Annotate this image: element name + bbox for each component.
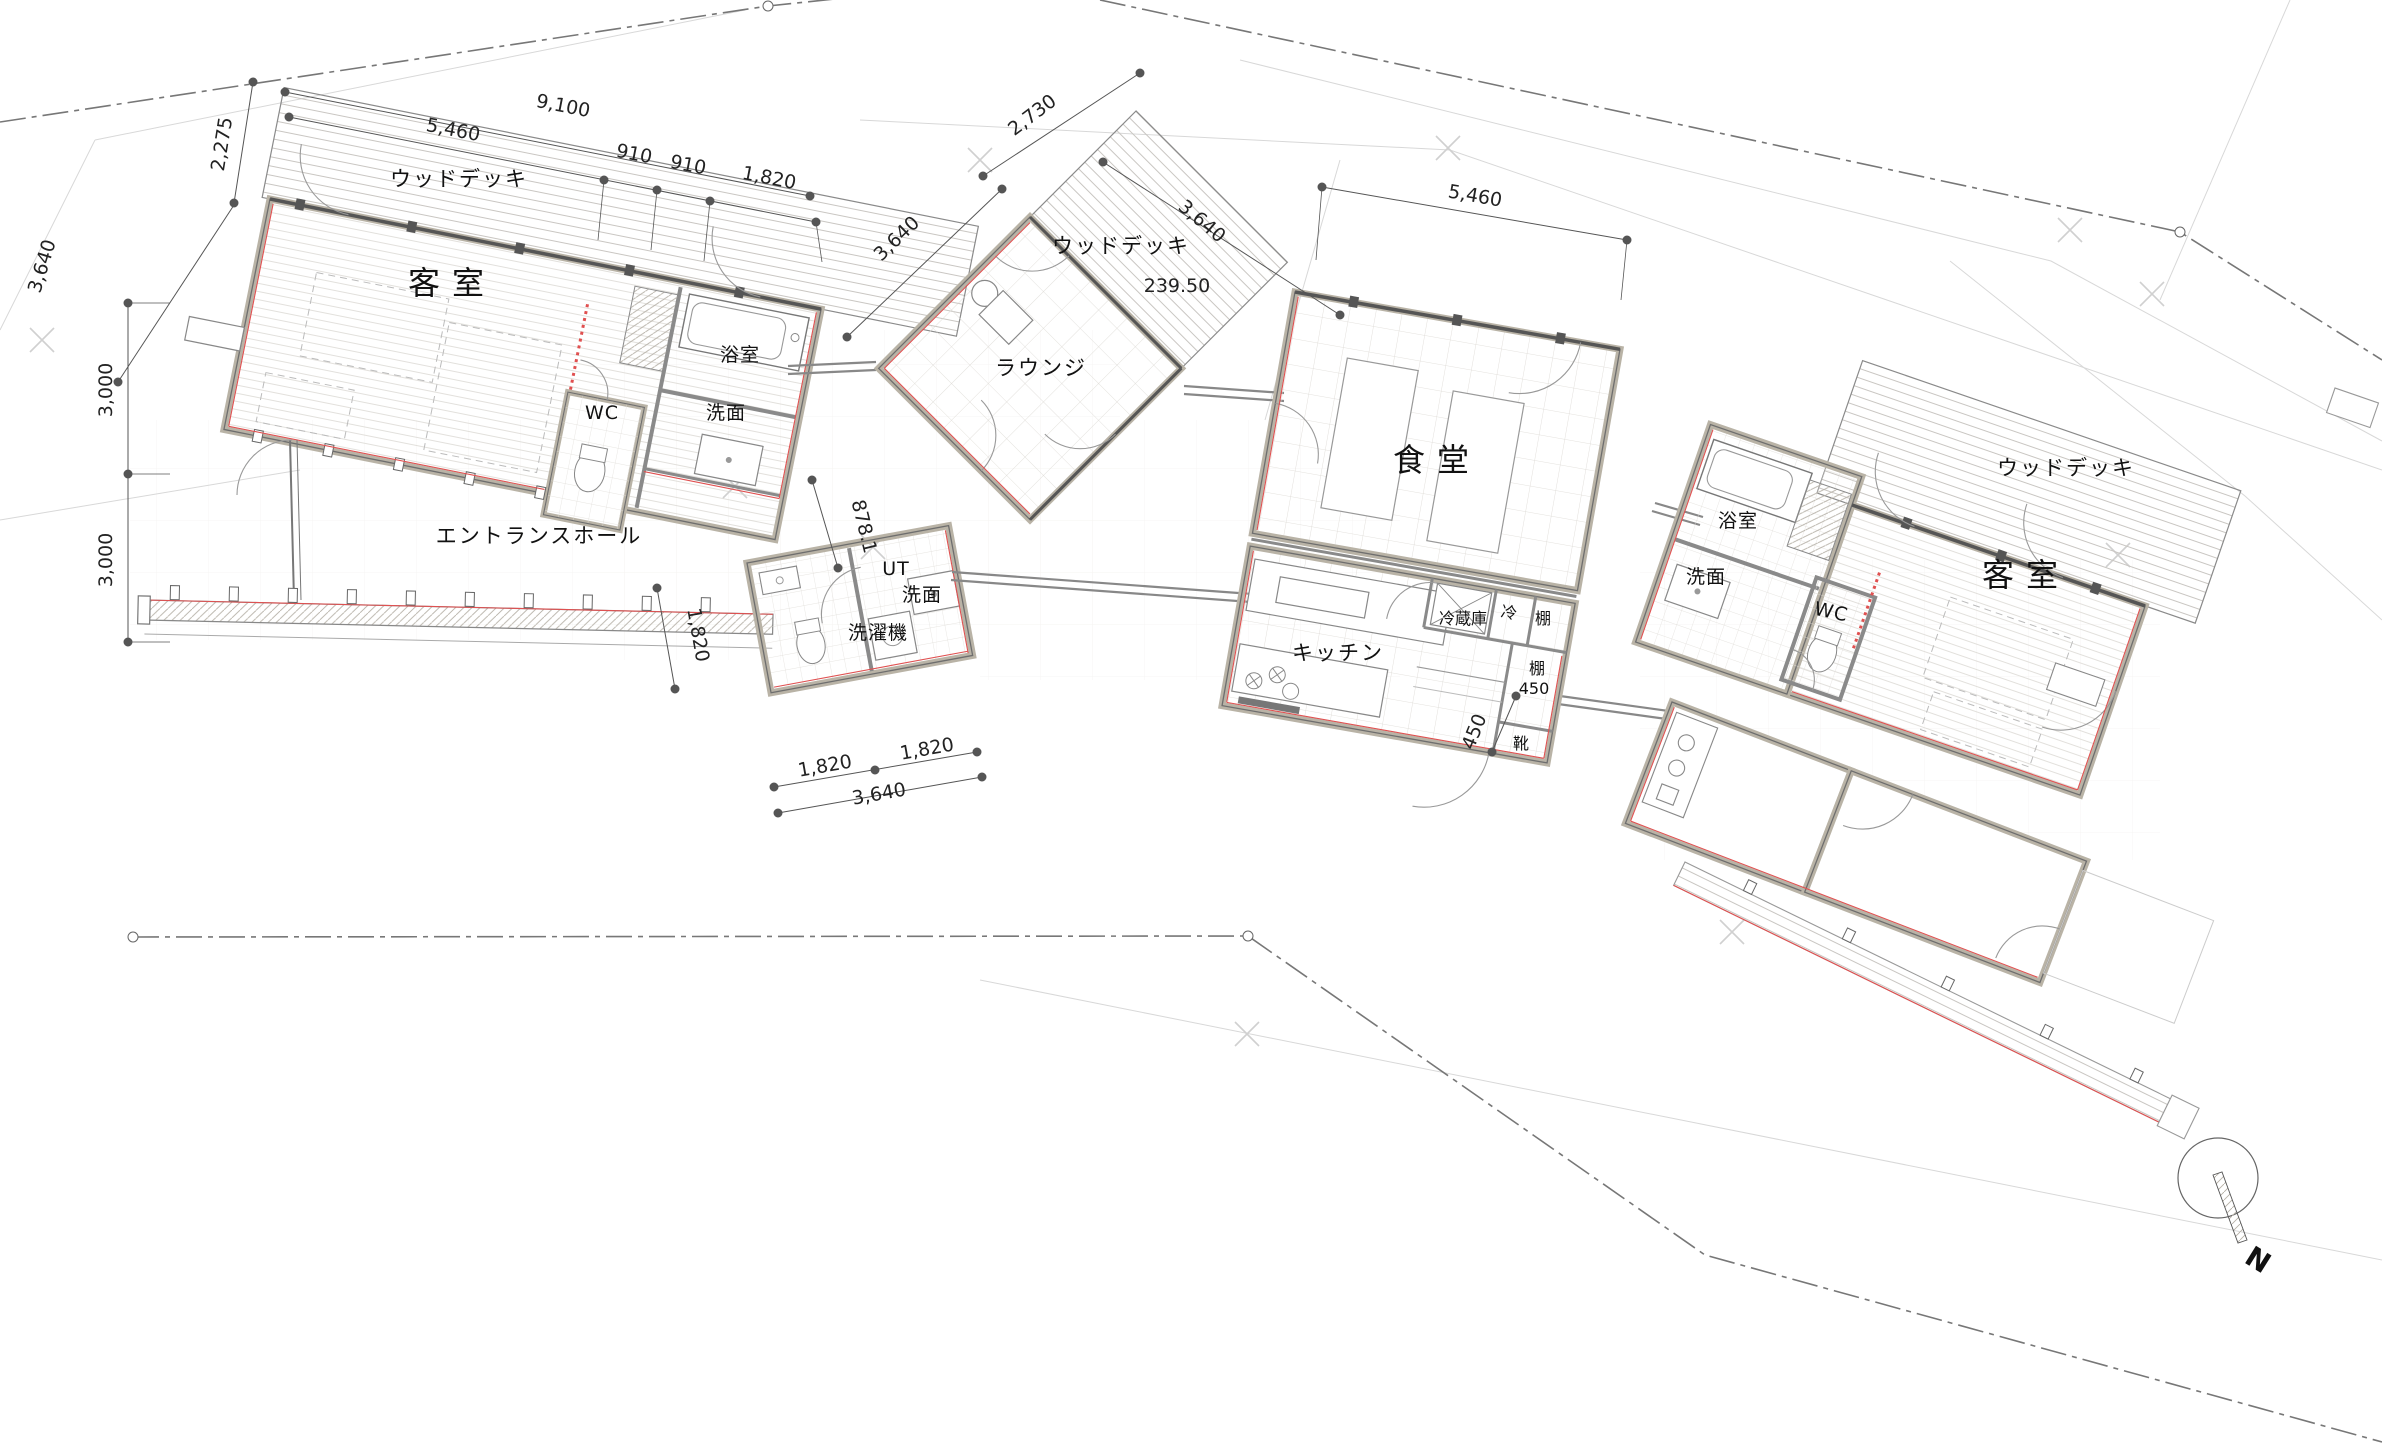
dim-3640-site: 3,640	[24, 237, 61, 295]
deck-level-value: 239.50	[1144, 275, 1210, 297]
dim-9100: 9,100	[534, 90, 592, 122]
porch-left	[185, 316, 245, 351]
dim-1820-b1: 1,820	[796, 751, 853, 782]
deck-step-far-right	[2327, 388, 2379, 428]
label-bath-right: 浴室	[1718, 510, 1758, 532]
compass-needle	[2213, 1172, 2247, 1243]
floor-plan-page: 9,100 5,460 910 910 1,820 2,275 3,640 3,…	[0, 0, 2382, 1444]
floor-plan-canvas: 9,100 5,460 910 910 1,820 2,275 3,640 3,…	[0, 0, 2382, 1444]
label-shelf-top: 棚	[1535, 609, 1551, 628]
label-wc-left: WC	[585, 402, 619, 424]
dim-3640-bottom: 3,640	[850, 779, 907, 810]
label-cold: 冷	[1499, 602, 1518, 623]
dim-3000a: 3,000	[95, 363, 117, 417]
dim-1820-b2: 1,820	[898, 734, 955, 765]
label-kitchen: キッチン	[1292, 641, 1384, 665]
label-deck-right: ウッドデッキ	[1997, 456, 2135, 480]
label-lav-right: 洗面	[1686, 566, 1726, 588]
label-shelf-right: 棚	[1529, 659, 1545, 678]
dim-2275: 2,275	[207, 115, 237, 172]
label-deck-center: ウッドデッキ	[1052, 234, 1190, 258]
label-lav-left: 洗面	[706, 402, 746, 424]
label-entrance-hall: エントランスホール	[436, 524, 643, 548]
dim-2730: 2,730	[1004, 90, 1061, 140]
compass-n-label: N	[2239, 1240, 2276, 1280]
label-guest-left: 客室	[408, 264, 496, 302]
dim-3000b: 3,000	[95, 533, 117, 587]
label-washer: 洗濯機	[848, 622, 908, 644]
label-deck-left: ウッドデッキ	[390, 167, 528, 191]
label-fridge: 冷蔵庫	[1439, 609, 1487, 628]
label-lounge: ラウンジ	[995, 356, 1087, 380]
label-lav-ut: 洗面	[902, 584, 942, 606]
label-shoes: 靴	[1513, 734, 1529, 753]
label-shelf-right-size: 450	[1519, 679, 1550, 698]
north-compass: N	[2178, 1138, 2277, 1280]
building-dining-kitchen	[1211, 286, 1621, 828]
dim-5460-dining: 5,460	[1446, 181, 1503, 212]
label-bath-left: 浴室	[720, 344, 760, 366]
label-dining: 食堂	[1393, 441, 1481, 479]
label-ut: UT	[882, 558, 910, 580]
label-guest-right: 客室	[1982, 556, 2070, 594]
